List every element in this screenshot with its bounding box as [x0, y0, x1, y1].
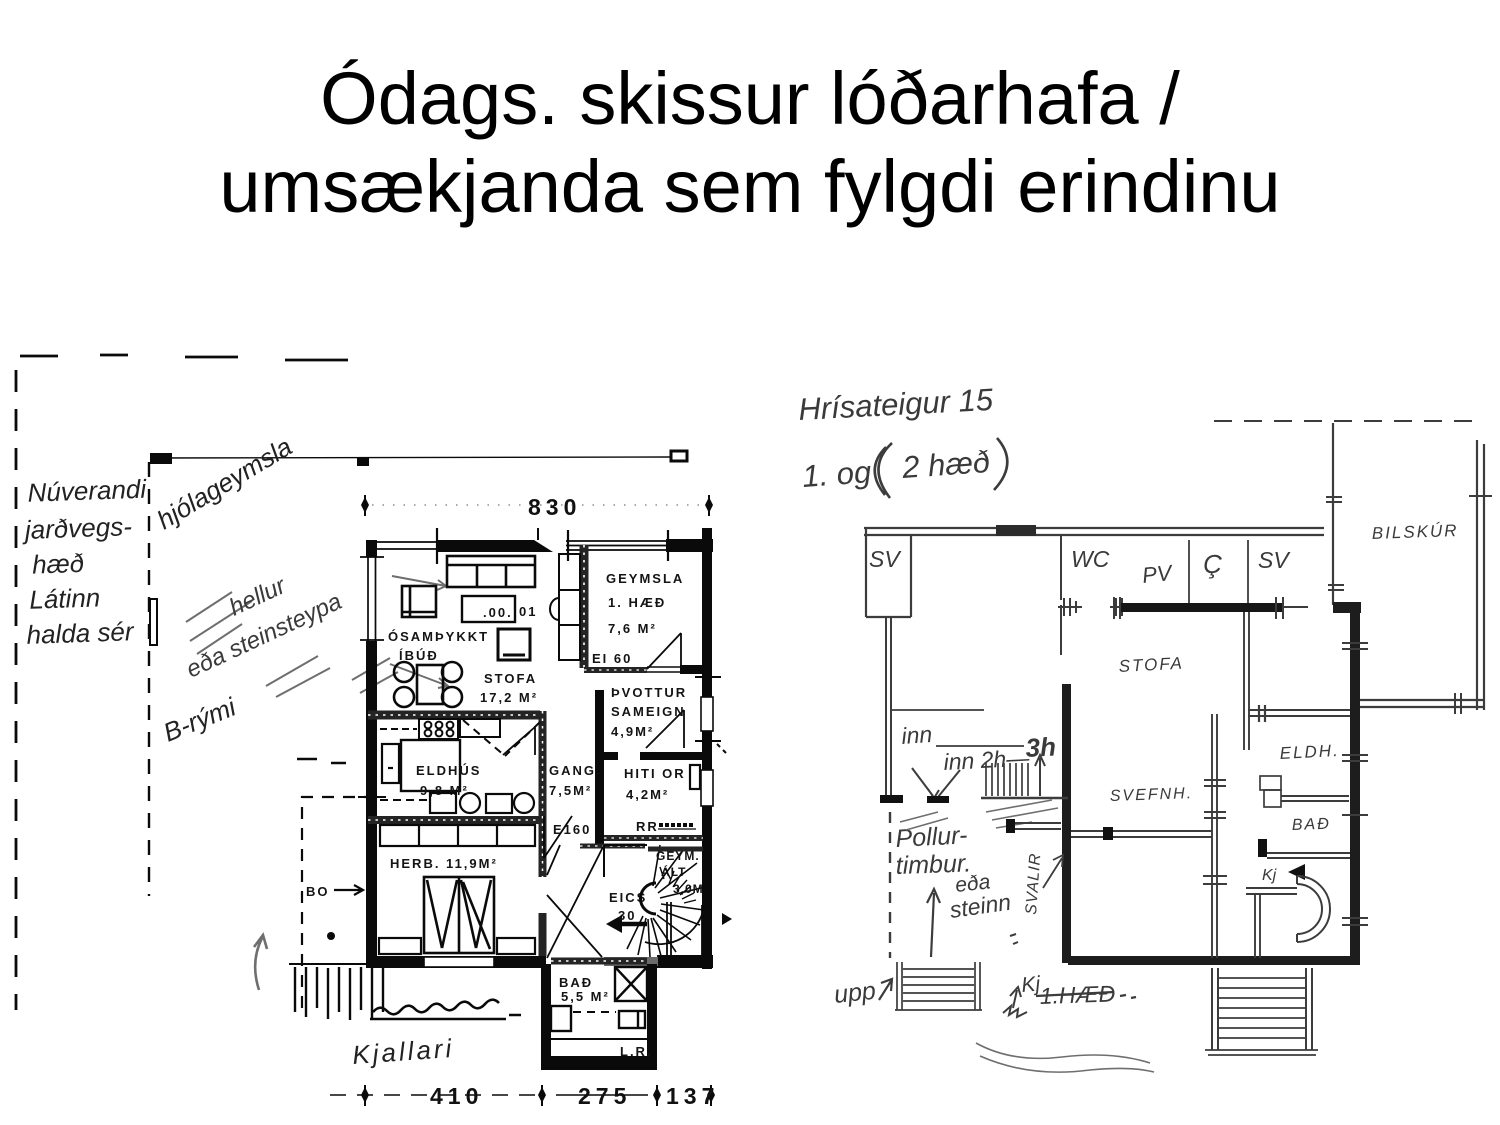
svg-text:halda sér: halda sér: [26, 616, 135, 650]
svg-text:4,2M²: 4,2M²: [626, 787, 669, 802]
svg-text:830: 830: [528, 494, 581, 520]
svg-text:Pollur-: Pollur-: [895, 821, 968, 853]
svg-text:upp: upp: [833, 977, 878, 1009]
svg-text:Látinn: Látinn: [29, 582, 101, 614]
svg-text:ÓSAMÞYKKT: ÓSAMÞYKKT: [388, 629, 489, 644]
svg-text:1. HÆÐ: 1. HÆÐ: [608, 595, 666, 610]
svg-text:30: 30: [618, 908, 636, 923]
svg-text:ÍBÚÐ: ÍBÚÐ: [399, 648, 439, 663]
svg-text:Núverandi: Núverandi: [27, 474, 148, 508]
svg-text:Kjallari: Kjallari: [351, 1033, 455, 1070]
svg-text:5,5 M²: 5,5 M²: [561, 989, 610, 1004]
svg-text:17,2 M²: 17,2 M²: [480, 690, 538, 705]
svg-text:.00.: .00.: [483, 605, 513, 620]
svg-text:SV: SV: [869, 546, 902, 572]
svg-text:STOFA: STOFA: [1118, 654, 1184, 676]
svg-text:275: 275: [578, 1083, 631, 1109]
svg-text:SVEFNH.: SVEFNH.: [1110, 785, 1194, 805]
svg-text:ELDH.: ELDH.: [1279, 741, 1340, 763]
svg-text:L.R.: L.R.: [620, 1044, 653, 1059]
svg-text:BAÐ: BAÐ: [1292, 816, 1331, 834]
svg-text:SAMEIGN: SAMEIGN: [611, 704, 686, 719]
svg-text:Kj: Kj: [1262, 867, 1277, 884]
svg-text:7,5M²: 7,5M²: [549, 783, 592, 798]
svg-text:HITI OR: HITI OR: [624, 766, 686, 781]
svg-text:GEYMSLA: GEYMSLA: [606, 571, 684, 586]
svg-text:9,8 M²: 9,8 M²: [420, 783, 469, 798]
svg-text:BAÐ: BAÐ: [559, 975, 593, 990]
svg-text:hjólageymsla: hjólageymsla: [152, 431, 298, 535]
svg-text:BO: BO: [306, 884, 330, 899]
svg-text:inn: inn: [901, 721, 933, 749]
svg-text:STOFA: STOFA: [484, 671, 537, 686]
svg-text:GEYM.: GEYM.: [656, 849, 700, 863]
svg-text:BILSKÚR: BILSKÚR: [1371, 521, 1458, 543]
svg-text:SV: SV: [1258, 547, 1291, 573]
svg-text:137: 137: [666, 1083, 719, 1109]
svg-text:01: 01: [519, 604, 537, 619]
svg-text:HERB. 11,9M²: HERB. 11,9M²: [390, 856, 498, 871]
svg-text:jarðvegs-: jarðvegs-: [21, 511, 132, 545]
svg-text:ELDHÚS: ELDHÚS: [416, 763, 481, 778]
svg-text:Ç: Ç: [1203, 549, 1222, 579]
svg-text:EI 60: EI 60: [592, 651, 632, 666]
svg-text:7,6 M²: 7,6 M²: [608, 621, 657, 636]
svg-text:410: 410: [430, 1083, 483, 1109]
svg-text:ÞVOTTUR: ÞVOTTUR: [611, 685, 687, 700]
svg-text:GANG.: GANG.: [549, 763, 602, 778]
svg-text:hæð: hæð: [32, 548, 85, 580]
svg-text:Hrísateigur 15: Hrísateigur 15: [798, 382, 995, 427]
svg-text:2 hæð: 2 hæð: [900, 444, 991, 485]
svg-text:1. og: 1. og: [801, 454, 872, 494]
svg-text:4,9M²: 4,9M²: [611, 724, 654, 739]
svg-text:PV: PV: [1141, 560, 1175, 588]
svg-text:RR: RR: [636, 819, 659, 834]
svg-text:SVALIR: SVALIR: [1023, 852, 1044, 915]
svg-text:WC: WC: [1071, 546, 1110, 572]
svg-text:inn 2h—: inn 2h—: [943, 744, 1031, 775]
svg-text:B-rými: B-rými: [159, 691, 241, 747]
